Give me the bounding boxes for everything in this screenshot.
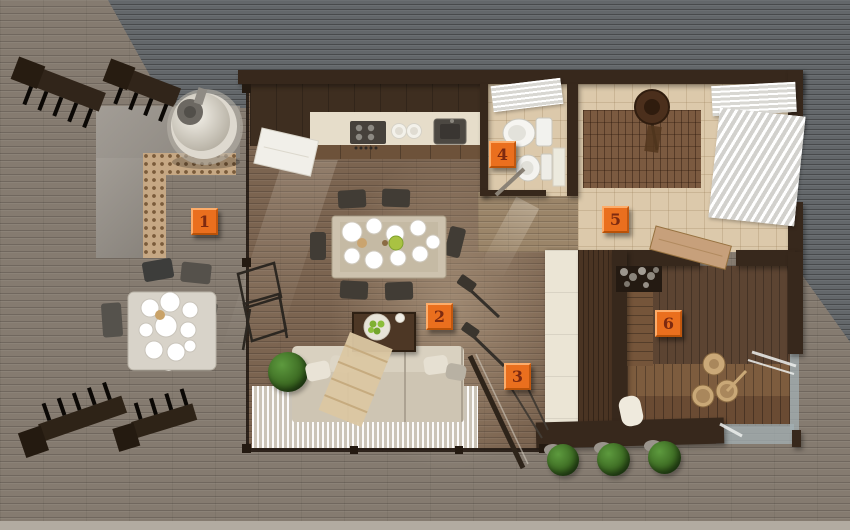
room-marker-4[interactable]: 4 — [489, 141, 516, 168]
glass-wall-post — [350, 446, 358, 454]
sauna-window-glass-bottom — [716, 424, 794, 444]
sauna-window-glass-right — [790, 352, 799, 430]
floor-plan-render: 1 2 3 4 5 6 — [0, 0, 850, 530]
sofa-seat — [292, 372, 464, 422]
glass-wall-post — [242, 444, 251, 453]
window-frame-corner — [792, 430, 801, 447]
glass-wall-post — [242, 84, 251, 93]
sauna-wall-top-right — [736, 250, 795, 266]
firewood-stack-side — [143, 153, 166, 258]
sauna-bench-upper — [627, 364, 790, 396]
room-marker-2[interactable]: 2 — [426, 303, 453, 330]
bathroom-wall-bottom — [480, 190, 546, 196]
restroom-slat-mat — [583, 110, 701, 188]
glass-wall-post — [455, 446, 463, 454]
image-bottom-edge — [0, 521, 850, 530]
bathroom-wall-left — [480, 84, 488, 196]
bush — [597, 443, 630, 476]
room-marker-5[interactable]: 5 — [602, 206, 629, 233]
glass-wall-left — [246, 84, 249, 452]
room-marker-3[interactable]: 3 — [504, 363, 531, 390]
concrete-hearth-top — [96, 106, 240, 158]
kitchen-drawers — [310, 145, 488, 159]
coffee-table — [352, 312, 416, 352]
sauna-wall-left — [612, 250, 627, 425]
kitchen-counter — [310, 112, 488, 147]
restroom-window-curtain — [708, 108, 805, 226]
sauna-wall-right — [788, 252, 803, 354]
bush — [547, 444, 579, 476]
wardrobe-light-section — [545, 250, 578, 425]
wardrobe-dark-section — [578, 250, 612, 425]
concrete-hearth-side — [96, 158, 146, 258]
glass-wall-post — [242, 258, 251, 267]
room-marker-6[interactable]: 6 — [655, 310, 682, 337]
room-marker-1[interactable]: 1 — [191, 208, 218, 235]
glass-wall-bottom — [246, 448, 546, 452]
sauna-bench-side — [627, 288, 653, 366]
bathroom-wall-right — [567, 84, 578, 196]
bush — [648, 441, 681, 474]
indoor-plant-ball — [268, 352, 308, 392]
glass-wall-post — [539, 444, 548, 453]
outdoor-dining-set — [101, 258, 218, 373]
